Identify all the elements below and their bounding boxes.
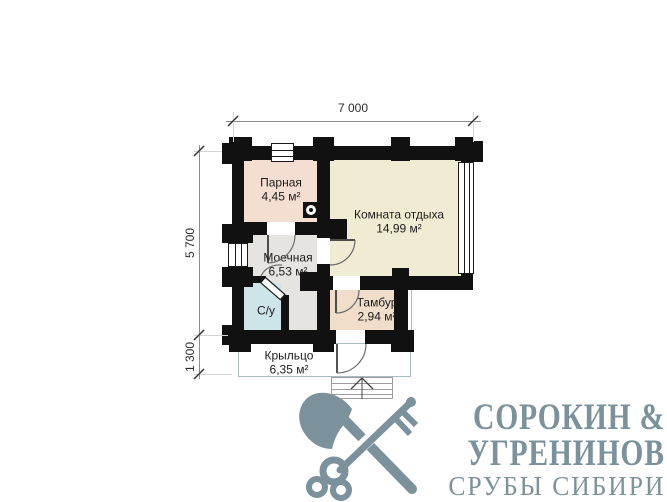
logo-line2: УГРЕНИНОВ [468,437,665,471]
dimension-left-label: 5 700 [183,228,197,258]
axe-head [299,393,352,449]
dimension-line-left [199,145,200,379]
log-end [455,137,474,161]
key-shaft-gap [338,400,412,468]
wall-ko-bottom-left [317,276,333,290]
log-end [222,267,253,287]
floor-plan-page: 7 000 5 700 1 300 Парная 4,45 м² Комната… [0,0,667,502]
extension-line [194,151,222,152]
log-end [313,330,334,352]
window-parnaya [271,143,294,162]
extension-line [473,112,474,142]
log-end [222,143,232,164]
wall-ko-bottom-right [360,276,473,290]
log-end [222,224,253,243]
label-moechnaya: Моечная 6,53 м² [263,252,312,279]
key-bow-ring [333,482,349,498]
extension-line [233,112,234,142]
wall-parnaya-right [295,222,330,235]
porch-steps [331,377,393,399]
key-tip [406,397,416,407]
dimension-porch-label: 1 300 [183,342,197,372]
dimension-top-label: 7 000 [338,101,368,115]
log-end [330,219,347,239]
label-tambur: Тамбур 2,94 м² [357,297,398,324]
dimension-line-top [226,121,481,122]
key-bow-ring [323,460,345,482]
wall-su-right [281,295,289,330]
key-bow-ring [309,479,325,495]
log-end [391,330,414,352]
crossed-axe-and-key-icon [299,393,416,498]
log-end [313,137,334,161]
wall-top [232,146,473,160]
window-moechnaya [228,243,248,267]
label-parnaya: Парная 4,45 м² [260,177,302,204]
key-bit [395,418,410,434]
axe-handle [330,405,412,489]
extension-line [194,374,232,375]
key-shaft [340,403,410,470]
key-bit [402,411,416,425]
log-end [229,330,251,352]
label-komnata-otdyha: Комната отдыха 14,99 м² [354,209,444,236]
log-end [473,141,483,162]
label-su: С/у [257,304,275,318]
label-krylco: Крыльцо 6,35 м² [265,350,314,377]
log-end [392,268,409,290]
window-komnata-otdyha [458,162,474,274]
log-end [391,137,410,161]
stove-icon [303,202,319,218]
logo-line1: СОРОКИН & [473,401,665,435]
logo-line3: СРУБЫ СИБИРИ [448,474,665,499]
extension-line [194,335,228,336]
